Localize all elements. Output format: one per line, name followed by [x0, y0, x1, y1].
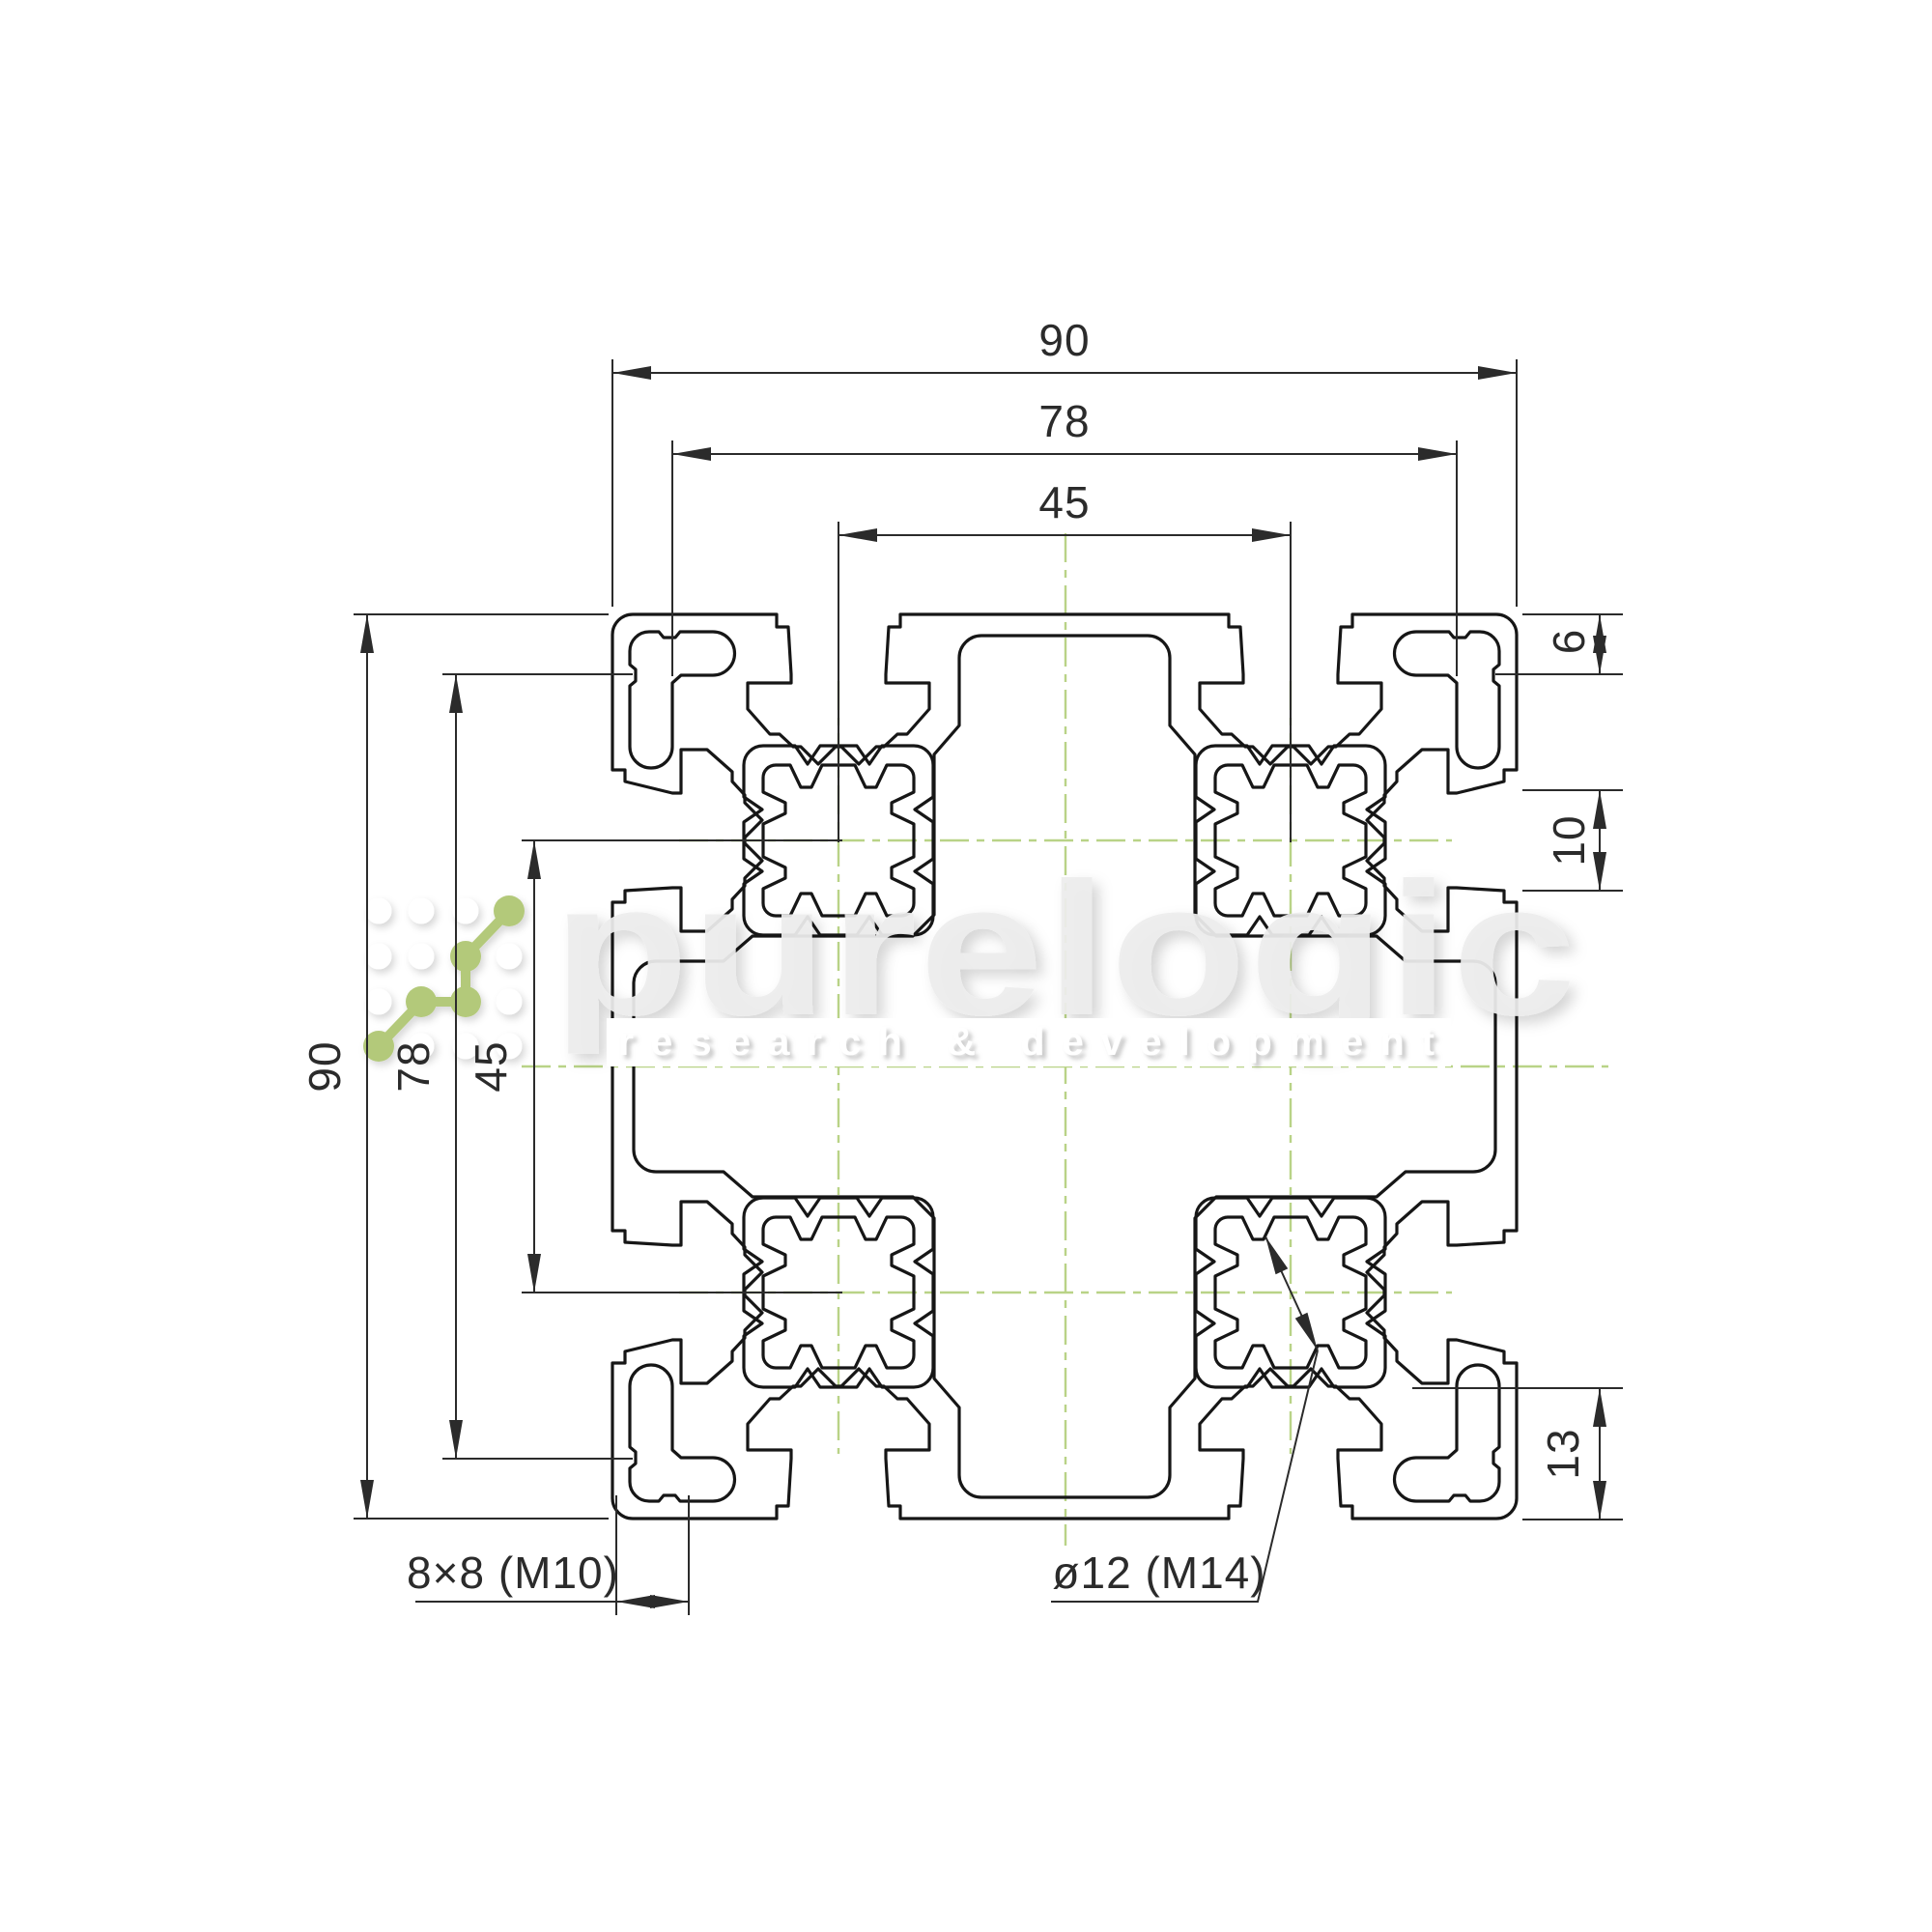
dim-label-top-78: 78	[1038, 396, 1090, 446]
watermark-logo	[363, 895, 525, 1062]
watermark-tagline-text: research & development	[618, 1019, 1435, 1064]
watermark: purelogic research & development	[553, 843, 1578, 1066]
drawing-page: 90 78 45 90 78 45 6 10 13 8×8 (M10) ø12 …	[0, 0, 1932, 1932]
dim-label-top-90: 90	[1038, 315, 1090, 365]
dim-label-top-45: 45	[1038, 477, 1090, 527]
dim-label-right-13: 13	[1538, 1428, 1588, 1479]
logo-dot-grid	[363, 895, 525, 1062]
callout-label-corner-slot: 8×8 (M10)	[407, 1548, 619, 1598]
dim-label-left-78: 78	[388, 1040, 439, 1092]
callout-label-screw-bore: ø12 (M14)	[1052, 1548, 1265, 1598]
dim-label-left-90: 90	[299, 1040, 350, 1092]
dim-label-left-45: 45	[466, 1040, 516, 1092]
profile-drawing-svg: 90 78 45 90 78 45 6 10 13 8×8 (M10) ø12 …	[0, 0, 1932, 1932]
dim-label-right-6: 6	[1544, 629, 1594, 655]
